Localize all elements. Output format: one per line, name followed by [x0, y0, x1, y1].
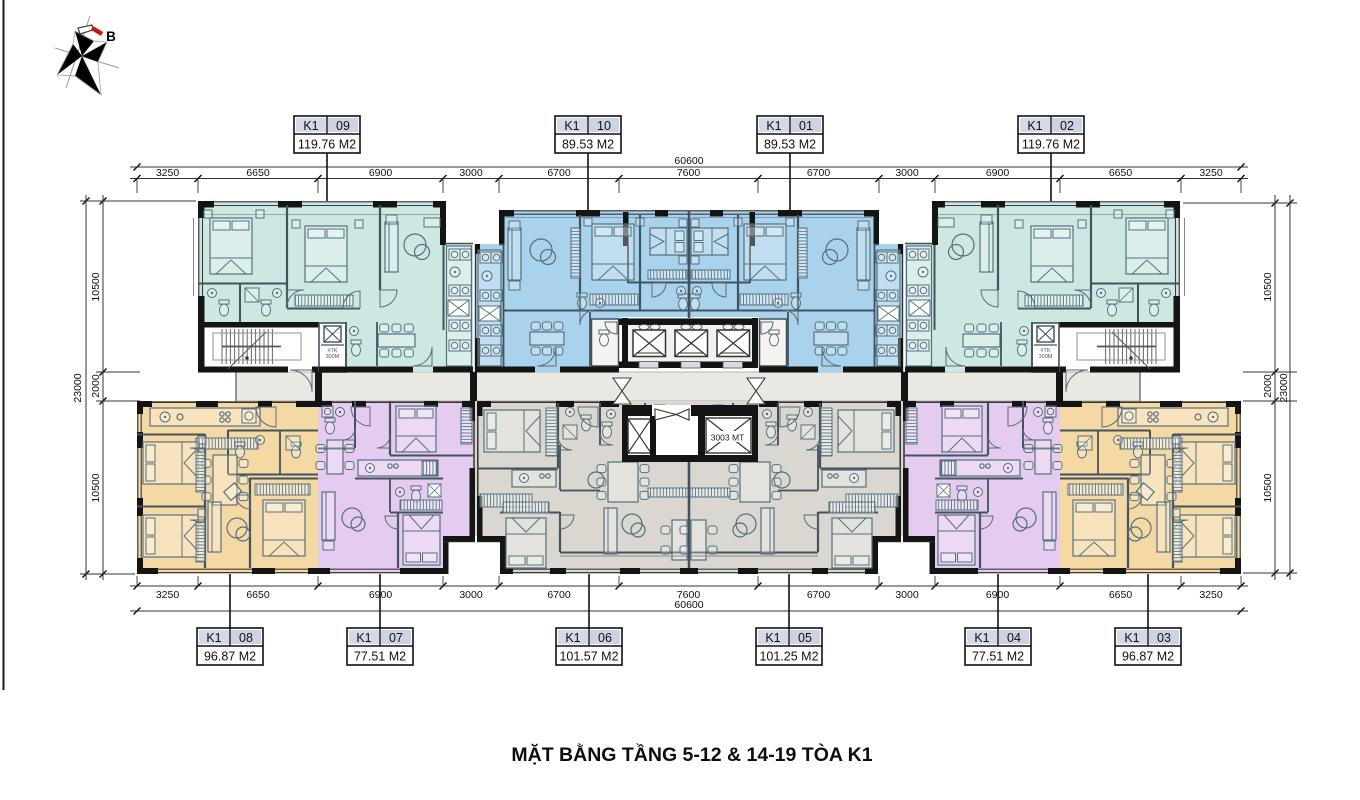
svg-text:05: 05 [798, 631, 812, 645]
svg-text:6700: 6700 [807, 589, 831, 601]
svg-text:B: B [106, 29, 116, 44]
svg-text:K1: K1 [565, 631, 580, 645]
svg-text:10500: 10500 [1262, 272, 1274, 301]
svg-text:6700: 6700 [807, 167, 831, 179]
svg-text:6650: 6650 [1109, 589, 1133, 601]
svg-text:MẶT BẰNG TẦNG 5-12 & 14-19 TÒA: MẶT BẰNG TẦNG 5-12 & 14-19 TÒA K1 [511, 742, 872, 766]
svg-text:77.51 M2: 77.51 M2 [354, 650, 406, 664]
svg-text:7600: 7600 [677, 167, 701, 179]
svg-text:01: 01 [799, 119, 813, 133]
svg-text:K1: K1 [765, 631, 780, 645]
svg-text:119.76 M2: 119.76 M2 [1022, 138, 1080, 152]
svg-text:K1: K1 [206, 631, 221, 645]
svg-text:6700: 6700 [547, 167, 571, 179]
svg-text:6650: 6650 [246, 167, 270, 179]
svg-text:23000: 23000 [72, 373, 84, 402]
svg-text:06: 06 [598, 631, 612, 645]
svg-text:6650: 6650 [246, 589, 270, 601]
svg-text:3250: 3250 [156, 167, 180, 179]
svg-text:60600: 60600 [674, 155, 703, 167]
svg-text:K1: K1 [766, 119, 781, 133]
svg-text:6650: 6650 [1109, 167, 1133, 179]
svg-text:6900: 6900 [369, 167, 393, 179]
svg-text:300M: 300M [1039, 354, 1053, 360]
svg-text:77.51 M2: 77.51 M2 [972, 650, 1024, 664]
svg-text:3000: 3000 [459, 167, 483, 179]
svg-text:07: 07 [389, 631, 403, 645]
svg-text:96.87 M2: 96.87 M2 [204, 650, 256, 664]
svg-text:04: 04 [1007, 631, 1021, 645]
svg-text:3000: 3000 [895, 589, 919, 601]
svg-text:02: 02 [1060, 119, 1074, 133]
svg-text:2000: 2000 [1262, 374, 1274, 398]
svg-text:10500: 10500 [90, 272, 102, 301]
svg-text:96.87 M2: 96.87 M2 [1122, 650, 1174, 664]
svg-text:6900: 6900 [986, 167, 1010, 179]
svg-text:10: 10 [597, 119, 611, 133]
svg-text:K1: K1 [356, 631, 371, 645]
svg-text:23000: 23000 [1278, 373, 1290, 402]
svg-text:119.76 M2: 119.76 M2 [298, 138, 356, 152]
svg-text:89.53 M2: 89.53 M2 [562, 138, 614, 152]
svg-text:03: 03 [1157, 631, 1171, 645]
svg-text:2000: 2000 [90, 374, 102, 398]
svg-text:300M: 300M [326, 354, 340, 360]
svg-text:K1: K1 [1027, 119, 1042, 133]
svg-text:K1: K1 [303, 119, 318, 133]
svg-text:3003 MT: 3003 MT [711, 433, 745, 443]
svg-text:K1: K1 [974, 631, 989, 645]
svg-text:3250: 3250 [1199, 167, 1223, 179]
svg-text:3000: 3000 [895, 167, 919, 179]
svg-text:101.57 M2: 101.57 M2 [559, 650, 618, 664]
svg-text:101.25 M2: 101.25 M2 [759, 650, 818, 664]
svg-text:10500: 10500 [1262, 473, 1274, 502]
svg-text:3000: 3000 [459, 589, 483, 601]
svg-text:09: 09 [336, 119, 350, 133]
svg-text:K1: K1 [1124, 631, 1139, 645]
svg-text:3250: 3250 [156, 589, 180, 601]
svg-text:60600: 60600 [674, 599, 703, 611]
svg-text:08: 08 [239, 631, 253, 645]
svg-text:6700: 6700 [547, 589, 571, 601]
svg-text:10500: 10500 [90, 473, 102, 502]
svg-text:K1: K1 [564, 119, 579, 133]
svg-text:89.53 M2: 89.53 M2 [764, 138, 816, 152]
svg-text:3250: 3250 [1199, 589, 1223, 601]
